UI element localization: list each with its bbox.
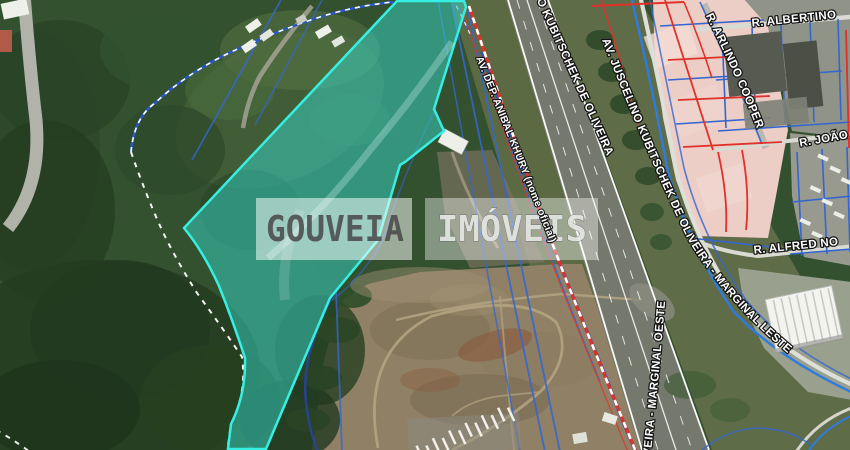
building [0,30,12,52]
watermark-text-right: IMÓVEIS [437,208,587,250]
satellite-map-viewport[interactable]: GOUVEIA IMÓVEIS R. ALBERTINO R. ARLINDO … [0,0,850,450]
satellite-map: GOUVEIA IMÓVEIS R. ALBERTINO R. ARLINDO … [0,0,850,450]
watermark-text-left: GOUVEIA [266,209,404,250]
